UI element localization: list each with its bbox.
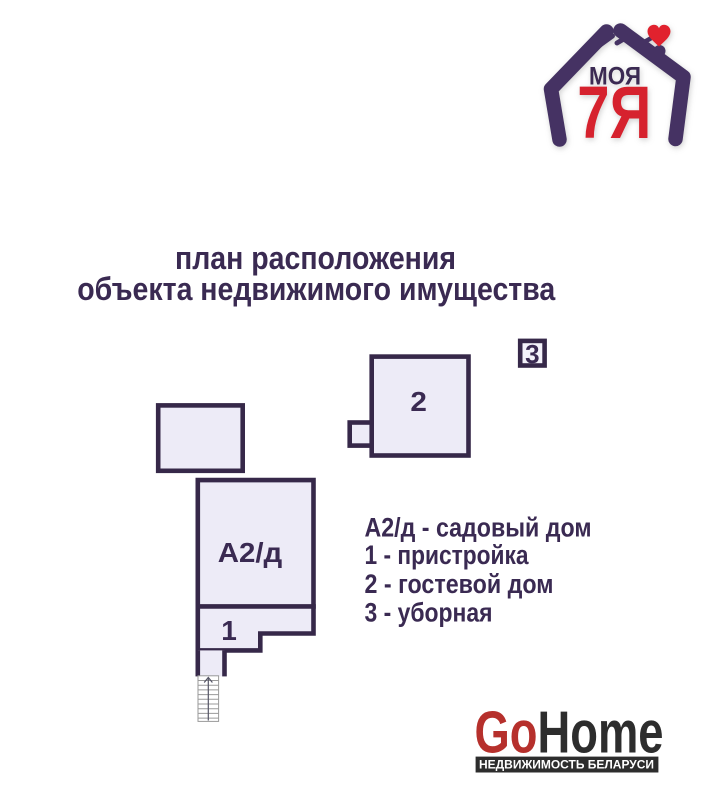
svg-text:НЕДВИЖИМОСТЬ БЕЛАРУСИ: НЕДВИЖИМОСТЬ БЕЛАРУСИ [479, 758, 654, 772]
svg-text:GoHome: GoHome [475, 699, 664, 765]
svg-text:7Я: 7Я [577, 71, 651, 154]
svg-text:объекта недвижимого имущества: объекта недвижимого имущества [77, 271, 555, 307]
svg-text:3: 3 [525, 339, 539, 369]
svg-text:1: 1 [221, 615, 237, 646]
svg-text:1 - пристройка: 1 - пристройка [365, 540, 530, 570]
svg-text:А2/д: А2/д [218, 537, 283, 568]
svg-text:2 - гостевой дом: 2 - гостевой дом [365, 569, 554, 599]
svg-text:2: 2 [410, 386, 427, 417]
svg-text:А2/д - садовый дом: А2/д - садовый дом [365, 512, 592, 542]
svg-text:3 - уборная: 3 - уборная [365, 597, 493, 627]
